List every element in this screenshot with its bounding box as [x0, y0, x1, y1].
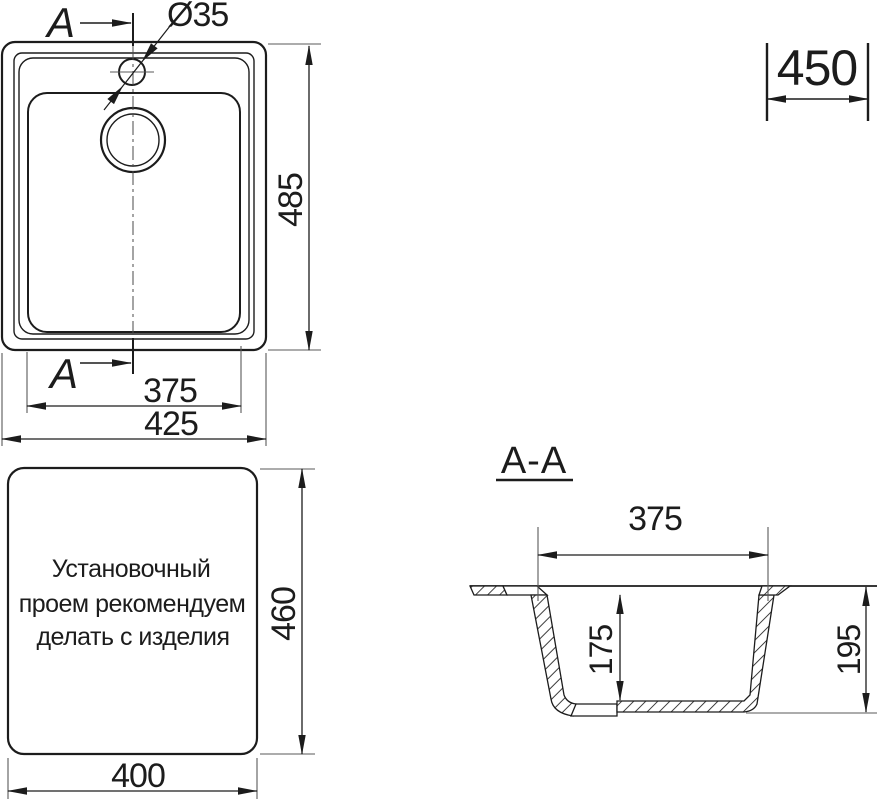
cabinet-callout: 450 [767, 40, 868, 121]
dim-400-label: 400 [111, 757, 165, 795]
drawing-canvas: A A Ø35 485 375 425 450 Установочный про… [0, 0, 877, 800]
install-note-line-3: делать с изделия [36, 623, 229, 651]
sink-rim-line [14, 53, 254, 339]
dim-485-label: 485 [272, 173, 310, 227]
dim-195-label: 195 [831, 625, 867, 676]
left-wall-hatched [531, 595, 576, 716]
sink-outer-edge [2, 42, 266, 350]
section-label-bottom: A [47, 350, 78, 397]
faucet-leader-arrow-upper [139, 43, 158, 64]
install-view: Установочный проем рекомендуем делать с … [8, 468, 315, 799]
left-flange-plain [503, 586, 547, 595]
section-label-top: A [44, 0, 75, 46]
section-view: A-A 375 175 195 [470, 440, 877, 716]
faucet-diameter-label: Ø35 [167, 0, 228, 34]
bottom-and-right-wall-hatched [617, 595, 774, 712]
right-flange-hatched [759, 586, 790, 595]
sink-rim-inner-line [19, 58, 249, 334]
dim-450-label: 450 [777, 40, 857, 96]
dim-175-label: 175 [583, 625, 619, 676]
install-note-line-2: проем рекомендуем [19, 590, 246, 618]
bowl-edge [28, 93, 240, 332]
install-note-line-1: Установочный [52, 555, 211, 583]
dim-460-label: 460 [265, 587, 303, 641]
dim-375-section-label: 375 [628, 500, 682, 538]
section-title: A-A [501, 440, 567, 482]
dim-425-label: 425 [144, 405, 198, 443]
left-flange-hatched [470, 586, 507, 595]
plan-view: A A Ø35 485 375 425 [2, 0, 321, 446]
drain-recess [571, 704, 617, 716]
technical-drawing: A A Ø35 485 375 425 450 Установочный про… [0, 0, 877, 800]
